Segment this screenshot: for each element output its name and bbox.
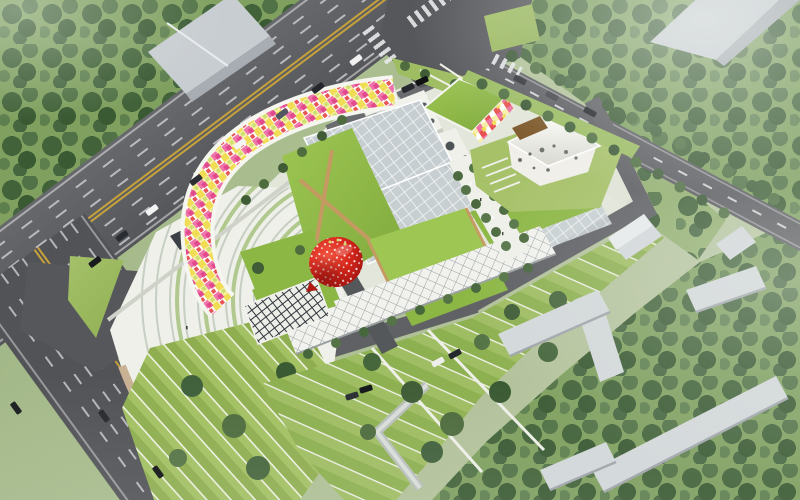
slab-long-south <box>592 376 788 492</box>
slab-l-arm <box>574 290 624 382</box>
pavilion-hip-roof-2 <box>716 226 756 260</box>
site-vector-layer <box>0 0 800 500</box>
slab-east <box>686 266 766 312</box>
aerial-rendering-scene <box>0 0 800 500</box>
warehouse-northeast <box>650 0 788 60</box>
